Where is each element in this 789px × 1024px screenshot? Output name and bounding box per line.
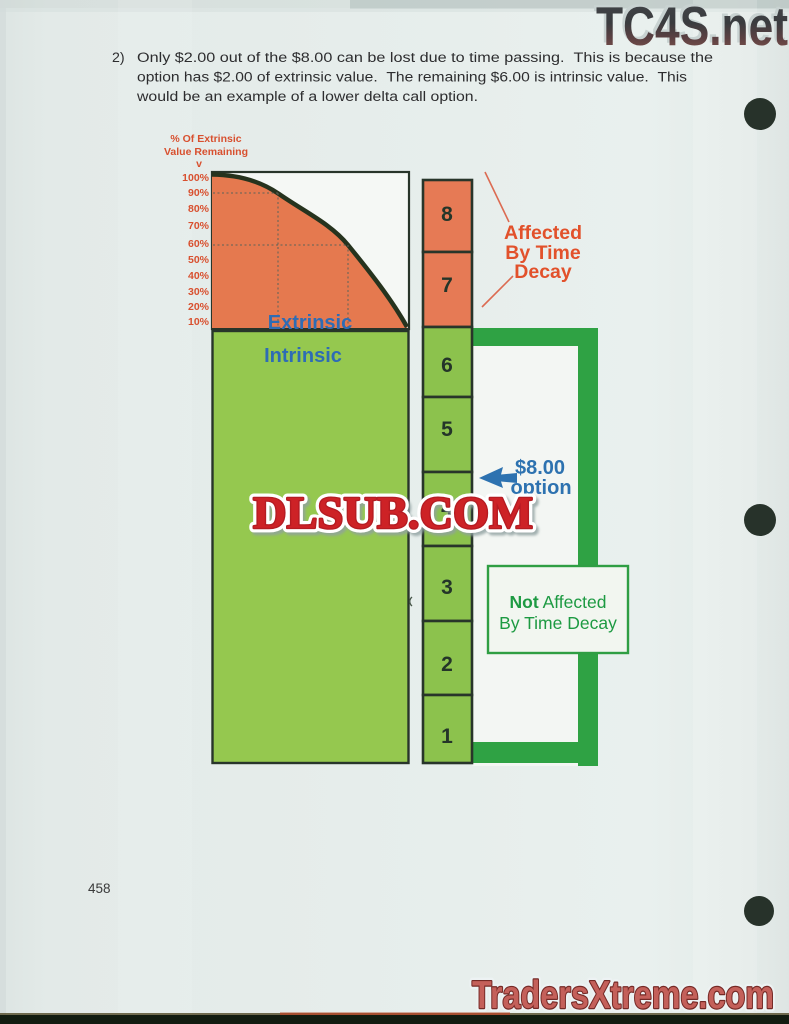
svg-text:40%: 40% [188, 270, 210, 282]
svg-text:Only $2.00 out of the $8.00 ca: Only $2.00 out of the $8.00 can be lost … [137, 50, 713, 66]
svg-text:70%: 70% [188, 220, 210, 232]
svg-text:Value Remaining: Value Remaining [164, 146, 248, 158]
svg-text:5: 5 [441, 418, 453, 441]
svg-text:TC4S.net: TC4S.net [596, 0, 788, 57]
svg-text:would be an example of a lower: would be an example of a lower delta cal… [136, 89, 478, 105]
svg-text:% Of Extrinsic: % Of Extrinsic [170, 133, 241, 145]
svg-text:8: 8 [441, 203, 453, 226]
svg-text:2: 2 [441, 653, 453, 676]
svg-text:6: 6 [441, 354, 453, 377]
svg-text:100%: 100% [182, 172, 210, 184]
svg-text:TradersXtreme.com: TradersXtreme.com [472, 974, 774, 1017]
svg-text:1: 1 [441, 725, 453, 748]
svg-text:80%: 80% [188, 203, 210, 215]
svg-text:DLSUB.COM: DLSUB.COM [253, 487, 533, 538]
svg-text:option has $2.00 of extrinsic: option has $2.00 of extrinsic value. The… [137, 70, 687, 86]
svg-text:Intrinsic: Intrinsic [264, 345, 342, 367]
svg-text:7: 7 [441, 274, 453, 297]
svg-text:458: 458 [88, 881, 111, 896]
svg-text:30%: 30% [188, 286, 210, 298]
svg-text:3: 3 [441, 576, 453, 599]
svg-text:$8.00: $8.00 [515, 457, 565, 479]
svg-text:20%: 20% [188, 301, 210, 313]
svg-text:Affected: Affected [504, 222, 582, 244]
svg-text:v: v [196, 158, 202, 170]
svg-text:Decay: Decay [514, 261, 572, 283]
svg-text:2): 2) [112, 50, 125, 66]
svg-text:50%: 50% [188, 254, 210, 266]
svg-text:By Time Decay: By Time Decay [499, 613, 617, 633]
svg-text:60%: 60% [188, 238, 210, 250]
svg-text:90%: 90% [188, 187, 210, 199]
svg-text:Not Affected: Not Affected [510, 592, 607, 612]
svg-text:10%: 10% [188, 316, 210, 328]
